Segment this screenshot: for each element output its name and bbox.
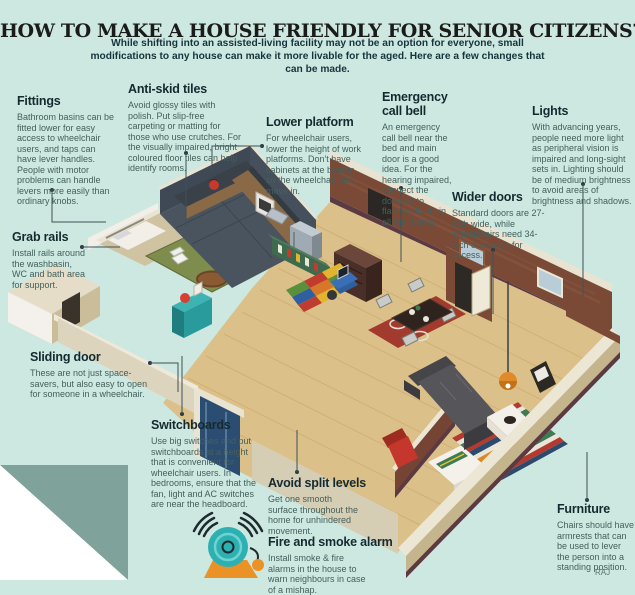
annotation-body: Bathroom basins can be fitted lower for …: [17, 112, 117, 207]
annotation-body: Install smoke & fire alarms in the house…: [268, 553, 372, 595]
annotation-furniture: Furniture Chairs should have armrests th…: [557, 502, 635, 573]
annotation-body: Avoid glossy tiles with polish. Put slip…: [128, 100, 242, 174]
annotation-body: An emergency call bell near the bed and …: [382, 122, 454, 227]
annotation-body: Use big switches and put switchboards at…: [151, 436, 259, 510]
annotation-title: Lower platform: [266, 115, 362, 129]
dresser: [172, 282, 212, 338]
annotation-title: Fire and smoke alarm: [268, 535, 398, 549]
annotation-title: Furniture: [557, 502, 635, 516]
alarm-bell-icon: [194, 513, 264, 578]
annotation-title: Emergency call bell: [382, 90, 454, 118]
annotation-title: Switchboards: [151, 418, 259, 432]
cooking-pot: [209, 180, 219, 190]
office-chair: [327, 290, 337, 300]
red-vase: [180, 293, 190, 303]
leader-furniture: [585, 452, 589, 502]
annotation-title: Grab rails: [12, 230, 86, 244]
annotation-title: Wider doors: [452, 190, 550, 204]
page-subtitle: While shifting into an assisted-living f…: [81, 37, 555, 76]
annotation-body: These are not just space-savers, but als…: [30, 368, 152, 400]
credit: RAJ: [595, 568, 610, 577]
annotation-body: Get one smooth surface throughout the ho…: [268, 494, 364, 536]
corner-fold: [0, 465, 128, 580]
annotation-lower-platform: Lower platform For wheelchair users, low…: [266, 115, 362, 196]
annotation-fittings: Fittings Bathroom basins can be fitted l…: [17, 94, 117, 207]
annotation-body: Chairs should have armrests that can be …: [557, 520, 635, 573]
annotation-anti-skid-tiles: Anti-skid tiles Avoid glossy tiles with …: [128, 82, 242, 174]
annotation-body: Install rails around the washbasin, WC a…: [12, 248, 86, 290]
annotation-title: Lights: [532, 104, 634, 118]
annotation-avoid-split-levels: Avoid split levels Get one smooth surfac…: [268, 476, 378, 536]
annotation-wider-doors: Wider doors Standard doors are 27-inch w…: [452, 190, 550, 261]
annotation-title: Sliding door: [30, 350, 152, 364]
annotation-body: For wheelchair users, lower the height o…: [266, 133, 362, 196]
annotation-body: Standard doors are 27-inch wide, while w…: [452, 208, 550, 261]
annotation-title: Fittings: [17, 94, 117, 108]
open-door: [472, 266, 490, 316]
annotation-grab-rails: Grab rails Install rails around the wash…: [12, 230, 86, 290]
annotation-title: Anti-skid tiles: [128, 82, 242, 96]
annotation-title: Avoid split levels: [268, 476, 378, 490]
annotation-emergency-call-bell: Emergency call bell An emergency call be…: [382, 90, 454, 227]
annotation-fire-and-smoke-alarm: Fire and smoke alarm Install smoke & fir…: [268, 535, 398, 595]
annotation-sliding-door: Sliding door These are not just space-sa…: [30, 350, 152, 400]
annotation-switchboards: Switchboards Use big switches and put sw…: [151, 418, 259, 510]
infographic-canvas: HOW TO MAKE A HOUSE FRIENDLY FOR SENIOR …: [0, 0, 635, 580]
bowl: [504, 416, 516, 424]
